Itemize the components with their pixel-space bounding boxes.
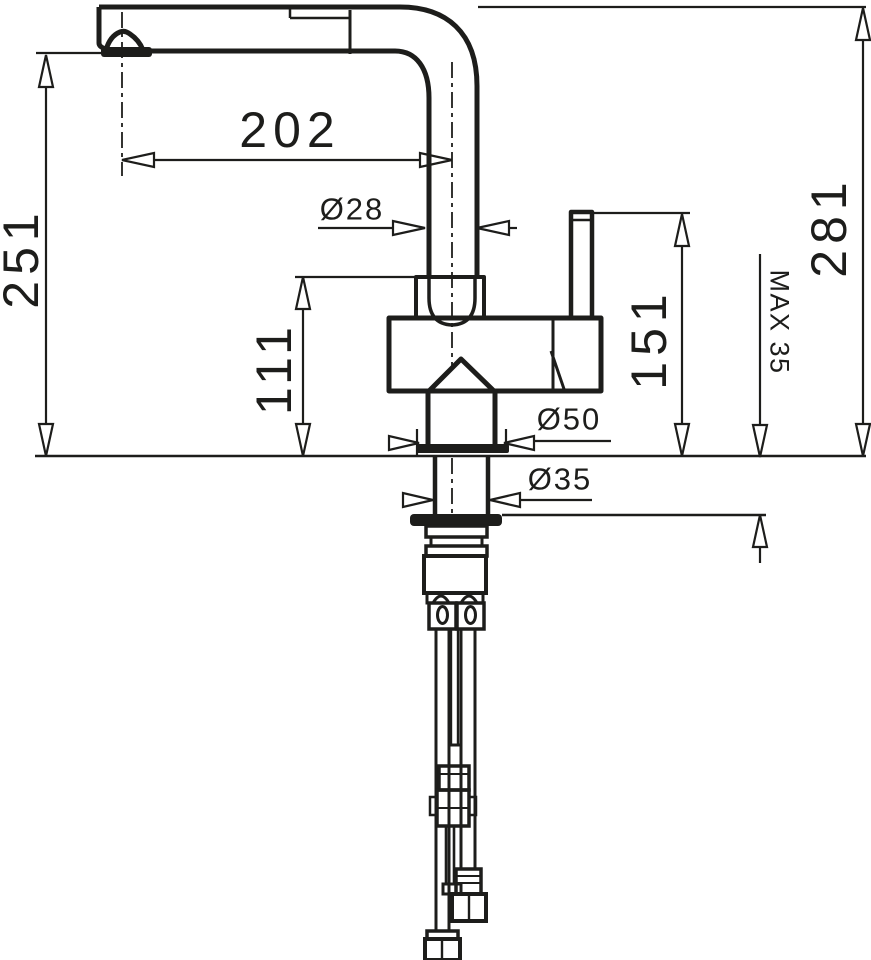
supply-hose-right: [461, 629, 475, 869]
dim-spout-reach: 202: [239, 105, 340, 155]
dim-outlet-height: 251: [0, 207, 46, 308]
aerator-base: [101, 47, 152, 57]
coupling-tab-left: [430, 797, 437, 815]
shank-ring-1: [426, 526, 487, 537]
dim-spout-diameter: Ø28: [320, 194, 385, 225]
handle-lever: [571, 212, 592, 318]
dim-handle-height: 151: [624, 288, 674, 389]
spout-tip-edge: [99, 7, 106, 49]
faucet-technical-drawing: 202 Ø28 251 111 151 281 MAX 35 Ø50 Ø35: [0, 0, 871, 960]
pullout-hose: [451, 629, 458, 745]
dim-total-height: 281: [804, 176, 854, 277]
dim-shank-diameter: Ø35: [528, 464, 593, 495]
extension-lines: [36, 7, 866, 563]
base-plate: [416, 444, 509, 453]
escutcheon-dome: [428, 359, 495, 446]
dim-max-counter-thickness: MAX 35: [766, 269, 793, 374]
pullout-neck: [449, 745, 461, 766]
hose-nut-hole-left: [438, 607, 448, 624]
faucet-line-art: [0, 0, 871, 960]
under-counter-assembly: [410, 457, 502, 960]
faucet-outline: [99, 7, 601, 453]
dim-body-height: 111: [249, 321, 299, 415]
pullout-fitting: [439, 766, 469, 790]
mixer-body: [389, 318, 601, 391]
mounting-washer: [410, 514, 502, 526]
spout-underside-and-riser-left: [150, 51, 429, 277]
right-hose-fitting-lines: [456, 876, 481, 883]
shank-block: [424, 556, 486, 593]
coupling-tab-right: [469, 797, 476, 815]
hose-nut-hole-right: [466, 607, 476, 624]
dim-base-diameter: Ø50: [537, 404, 602, 435]
